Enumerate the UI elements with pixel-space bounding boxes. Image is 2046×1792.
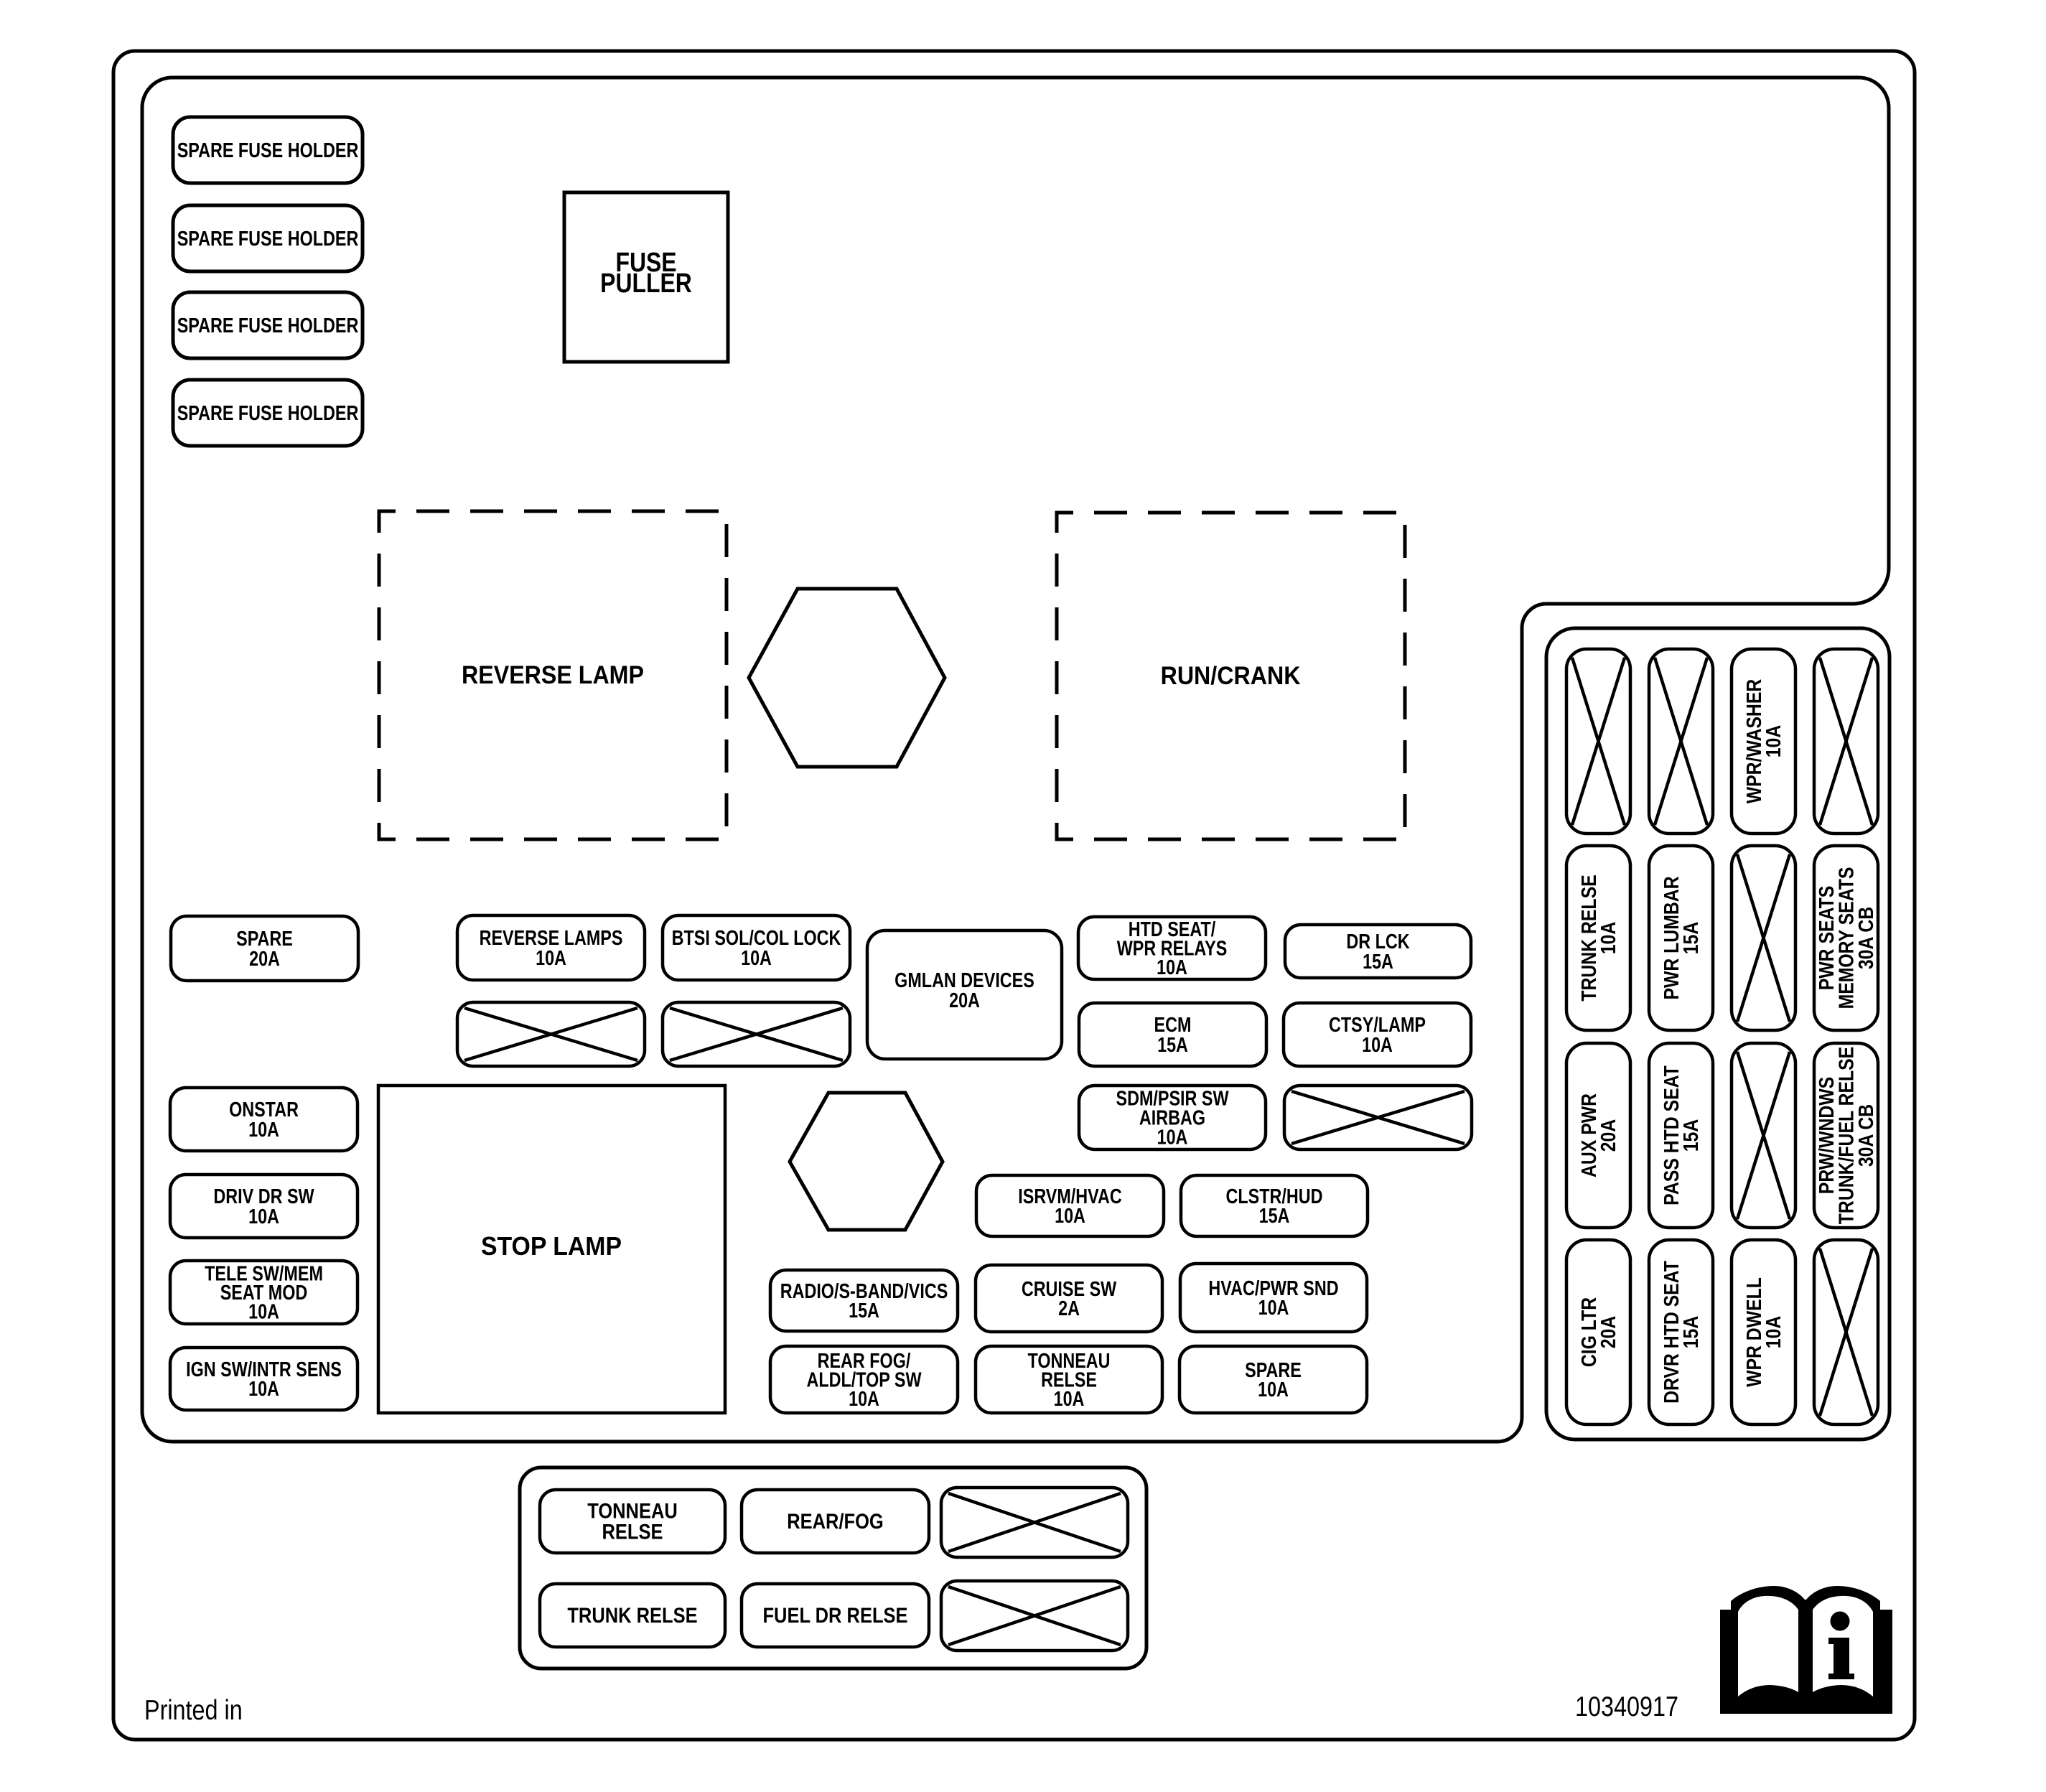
svg-text:RELSE: RELSE	[602, 1520, 663, 1544]
svg-text:10A: 10A	[248, 1118, 279, 1142]
svg-text:10A: 10A	[849, 1387, 879, 1411]
svg-text:10A: 10A	[1055, 1204, 1085, 1228]
svg-text:30A CB: 30A CB	[1854, 1104, 1877, 1167]
svg-text:10A: 10A	[536, 946, 566, 970]
svg-text:STOP LAMP: STOP LAMP	[481, 1232, 622, 1261]
svg-text:20A: 20A	[949, 989, 980, 1012]
svg-text:SPARE FUSE HOLDER: SPARE FUSE HOLDER	[177, 227, 359, 251]
svg-text:SPARE FUSE HOLDER: SPARE FUSE HOLDER	[177, 139, 359, 162]
svg-text:15A: 15A	[1680, 1316, 1703, 1348]
svg-text:10A: 10A	[1157, 1125, 1188, 1149]
svg-text:10A: 10A	[1054, 1387, 1085, 1411]
svg-text:SPARE FUSE HOLDER: SPARE FUSE HOLDER	[177, 401, 359, 425]
svg-text:10A: 10A	[1258, 1296, 1289, 1320]
svg-text:10340917: 10340917	[1575, 1691, 1678, 1722]
svg-text:PULLER: PULLER	[600, 268, 692, 298]
svg-text:10A: 10A	[248, 1377, 279, 1401]
svg-text:30A CB: 30A CB	[1854, 907, 1877, 969]
svg-text:20A: 20A	[1597, 1119, 1620, 1152]
svg-text:20A: 20A	[1597, 1316, 1620, 1348]
svg-text:20A: 20A	[249, 947, 280, 971]
svg-text:15A: 15A	[1157, 1033, 1188, 1057]
svg-text:REAR/FOG: REAR/FOG	[787, 1509, 884, 1533]
svg-text:REVERSE LAMP: REVERSE LAMP	[462, 662, 644, 690]
svg-text:10A: 10A	[1762, 725, 1785, 757]
svg-text:15A: 15A	[1680, 922, 1703, 954]
svg-text:10A: 10A	[1762, 1316, 1785, 1348]
svg-text:15A: 15A	[849, 1299, 879, 1322]
svg-text:RUN/CRANK: RUN/CRANK	[1161, 663, 1301, 691]
svg-text:10A: 10A	[1157, 956, 1187, 979]
svg-text:Printed in: Printed in	[144, 1694, 243, 1726]
svg-text:10A: 10A	[248, 1299, 279, 1323]
svg-text:SPARE FUSE HOLDER: SPARE FUSE HOLDER	[177, 314, 359, 337]
svg-text:2A: 2A	[1058, 1297, 1080, 1320]
svg-text:10A: 10A	[741, 946, 772, 970]
svg-text:10A: 10A	[1258, 1378, 1289, 1401]
svg-text:TRUNK RELSE: TRUNK RELSE	[567, 1603, 697, 1627]
svg-text:15A: 15A	[1363, 950, 1393, 974]
svg-text:10A: 10A	[1362, 1033, 1393, 1057]
svg-text:FUEL DR RELSE: FUEL DR RELSE	[762, 1603, 907, 1627]
svg-text:15A: 15A	[1680, 1119, 1703, 1152]
svg-text:10A: 10A	[248, 1205, 279, 1228]
svg-text:15A: 15A	[1259, 1204, 1290, 1228]
svg-text:10A: 10A	[1597, 922, 1620, 954]
